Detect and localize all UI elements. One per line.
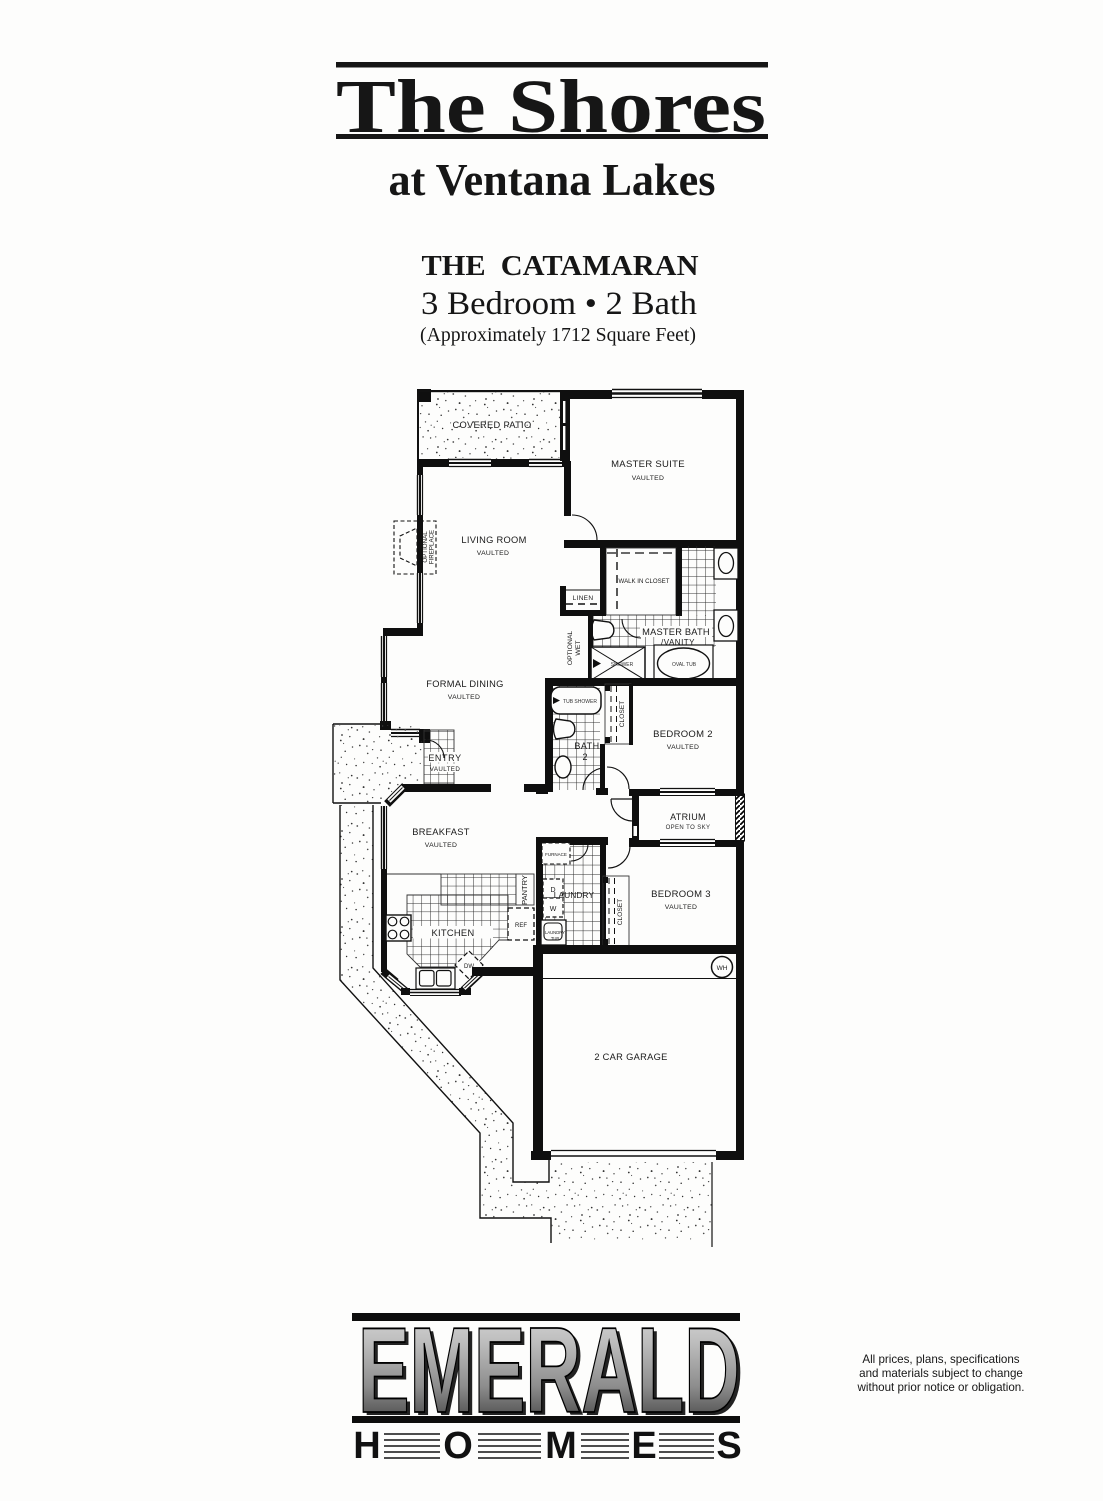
svg-text:BREAKFAST: BREAKFAST bbox=[412, 827, 469, 837]
svg-text:M: M bbox=[545, 1425, 577, 1467]
svg-text:OPEN TO SKY: OPEN TO SKY bbox=[666, 825, 711, 831]
svg-text:W: W bbox=[550, 906, 557, 913]
svg-text:VAULTED: VAULTED bbox=[430, 766, 461, 773]
svg-text:2: 2 bbox=[582, 752, 587, 762]
svg-text:OVAL TUB: OVAL TUB bbox=[672, 662, 697, 668]
svg-text:and materials subject to chang: and materials subject to change bbox=[859, 1367, 1023, 1380]
svg-text:LAUNDRY: LAUNDRY bbox=[554, 891, 595, 900]
svg-text:(Approximately 1712 Square Fee: (Approximately 1712 Square Feet) bbox=[420, 324, 696, 346]
svg-text:BEDROOM 2: BEDROOM 2 bbox=[653, 729, 713, 740]
svg-text:at Ventana Lakes: at Ventana Lakes bbox=[389, 155, 716, 205]
svg-text:E: E bbox=[631, 1425, 656, 1467]
svg-text:ATRIUM: ATRIUM bbox=[670, 812, 706, 822]
svg-text:TUB SHOWER: TUB SHOWER bbox=[563, 699, 597, 705]
svg-text:VAULTED: VAULTED bbox=[667, 744, 699, 751]
svg-text:BATH: BATH bbox=[574, 741, 599, 751]
svg-text:FIREPLACE: FIREPLACE bbox=[429, 530, 436, 564]
svg-text:VAULTED: VAULTED bbox=[665, 904, 697, 911]
svg-text:2 CAR GARAGE: 2 CAR GARAGE bbox=[594, 1052, 667, 1062]
svg-text:VAULTED: VAULTED bbox=[477, 550, 509, 557]
svg-text:SHOWER: SHOWER bbox=[611, 662, 634, 668]
svg-text:TUB: TUB bbox=[551, 936, 560, 941]
svg-text:H: H bbox=[353, 1425, 380, 1467]
svg-text:MASTER BATH: MASTER BATH bbox=[642, 627, 710, 637]
svg-text:ENTRY: ENTRY bbox=[428, 753, 461, 763]
svg-text:S: S bbox=[716, 1425, 741, 1467]
svg-text:CLOSET: CLOSET bbox=[617, 899, 624, 925]
svg-text:THE CATAMARAN: THE CATAMARAN bbox=[422, 251, 699, 282]
svg-text:FORMAL DINING: FORMAL DINING bbox=[426, 679, 503, 689]
svg-text:LINEN: LINEN bbox=[573, 595, 594, 602]
svg-text:PANTRY: PANTRY bbox=[520, 875, 529, 905]
svg-text:VAULTED: VAULTED bbox=[425, 842, 457, 849]
svg-text:LAUNDRY: LAUNDRY bbox=[545, 930, 565, 935]
svg-text:OPTIONAL: OPTIONAL bbox=[567, 631, 574, 666]
svg-text:REF: REF bbox=[515, 923, 527, 929]
svg-text:CLOSET: CLOSET bbox=[619, 701, 626, 727]
svg-text:without prior notice or obliga: without prior notice or obligation. bbox=[857, 1381, 1025, 1394]
svg-text:KITCHEN: KITCHEN bbox=[432, 928, 475, 938]
svg-text:O: O bbox=[443, 1425, 473, 1467]
svg-text:MASTER SUITE: MASTER SUITE bbox=[611, 459, 685, 470]
svg-text:VAULTED: VAULTED bbox=[448, 694, 480, 701]
svg-text:VAULTED: VAULTED bbox=[632, 475, 664, 482]
svg-text:WET: WET bbox=[575, 640, 582, 655]
svg-text:COVERED PATIO: COVERED PATIO bbox=[453, 420, 532, 430]
svg-text:WALK IN CLOSET: WALK IN CLOSET bbox=[619, 578, 670, 585]
svg-text:LIVING ROOM: LIVING ROOM bbox=[461, 535, 526, 545]
svg-text:WH: WH bbox=[717, 965, 728, 972]
svg-text:3 Bedroom • 2 Bath: 3 Bedroom • 2 Bath bbox=[421, 286, 698, 322]
svg-text:All prices, plans, specificati: All prices, plans, specifications bbox=[862, 1353, 1019, 1366]
svg-text:FURNACE: FURNACE bbox=[545, 852, 567, 857]
svg-text:BEDROOM 3: BEDROOM 3 bbox=[651, 889, 711, 900]
